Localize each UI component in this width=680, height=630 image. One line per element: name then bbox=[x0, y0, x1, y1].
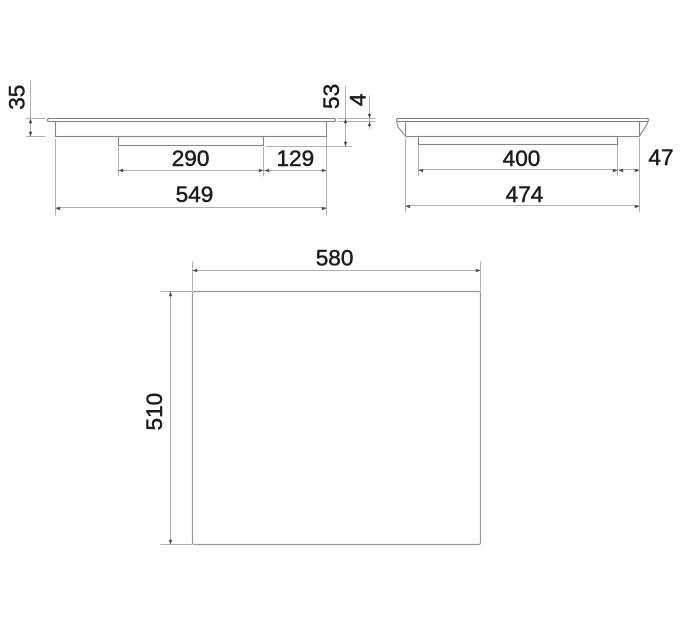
svg-text:549: 549 bbox=[176, 182, 214, 207]
svg-text:129: 129 bbox=[276, 146, 314, 171]
svg-text:4: 4 bbox=[346, 94, 371, 107]
svg-text:290: 290 bbox=[172, 146, 210, 171]
svg-text:580: 580 bbox=[316, 245, 354, 270]
svg-text:47: 47 bbox=[648, 145, 673, 170]
svg-text:474: 474 bbox=[506, 182, 544, 207]
svg-text:510: 510 bbox=[142, 393, 167, 431]
svg-text:35: 35 bbox=[5, 85, 30, 110]
svg-text:53: 53 bbox=[319, 84, 344, 109]
svg-text:400: 400 bbox=[503, 146, 541, 171]
